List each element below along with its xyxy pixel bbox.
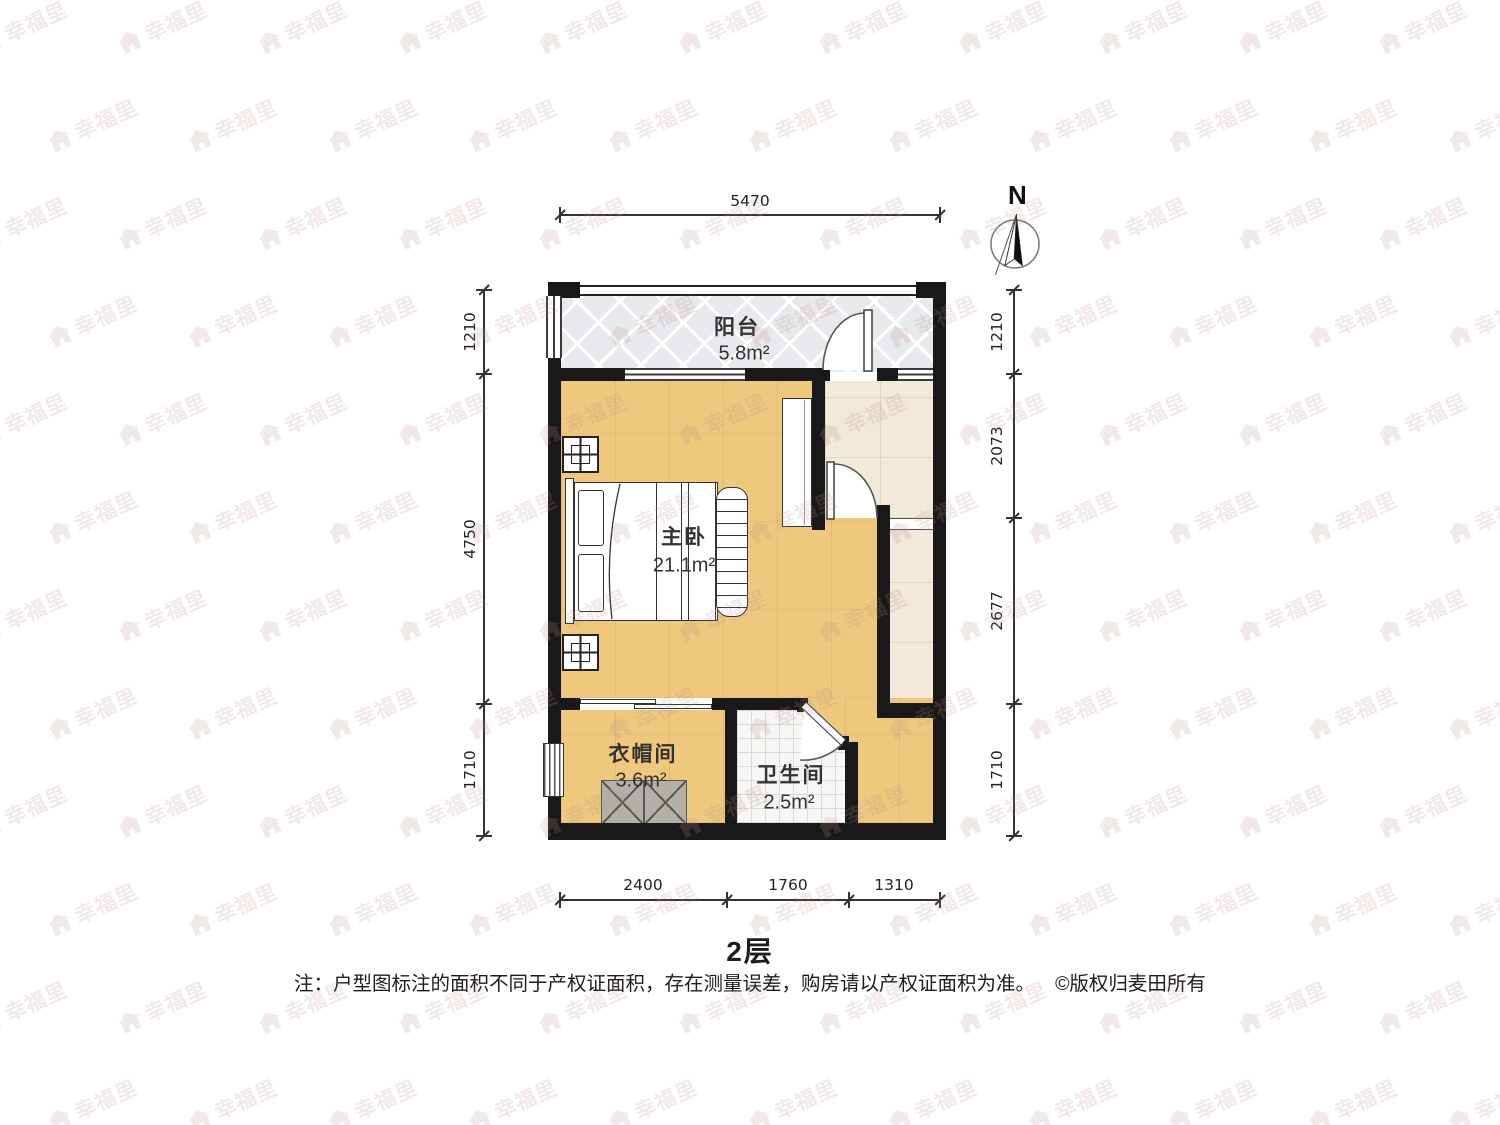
dim-left-4750: 4750 — [461, 519, 479, 558]
dim-right-2677: 2677 — [988, 591, 1006, 630]
dim-left-1710: 1710 — [461, 750, 479, 789]
bed-blanket-curve — [609, 484, 620, 619]
dim-right-2073: 2073 — [988, 426, 1006, 465]
dim-right-1710: 1710 — [988, 750, 1006, 789]
balcony-area: 5.8m² — [718, 343, 769, 366]
dim-line-top — [560, 214, 940, 216]
bedroom-area: 21.1m² — [653, 555, 715, 578]
dim-bottom-1760: 1760 — [768, 876, 807, 894]
cloakroom-label: 衣帽间 — [609, 738, 678, 768]
bathroom-label: 卫生间 — [757, 759, 826, 789]
dim-right-1210: 1210 — [988, 312, 1006, 351]
hall-door-leaf — [827, 462, 834, 519]
floorplan-image: 阳台 5.8m² 主卧 21.1m² 衣帽间 3.6m² 卫生间 2.5m² 5… — [0, 0, 1500, 1125]
balcony-door-leaf — [864, 310, 872, 371]
bedroom-label: 主卧 — [661, 521, 707, 551]
compass-icon: N — [982, 178, 1048, 290]
dim-line-bottom — [560, 899, 940, 901]
dim-left-1210: 1210 — [461, 312, 479, 351]
dim-bottom-2400: 2400 — [623, 876, 662, 894]
cloakroom-area: 3.6m² — [615, 770, 666, 793]
balcony-label: 阳台 — [714, 311, 760, 341]
bathroom-area: 2.5m² — [763, 792, 814, 815]
dim-bottom-1310: 1310 — [874, 876, 913, 894]
doors-overlay — [0, 0, 1500, 1125]
dim-top-5470: 5470 — [730, 192, 769, 210]
compass-north-label: N — [1008, 180, 1027, 210]
